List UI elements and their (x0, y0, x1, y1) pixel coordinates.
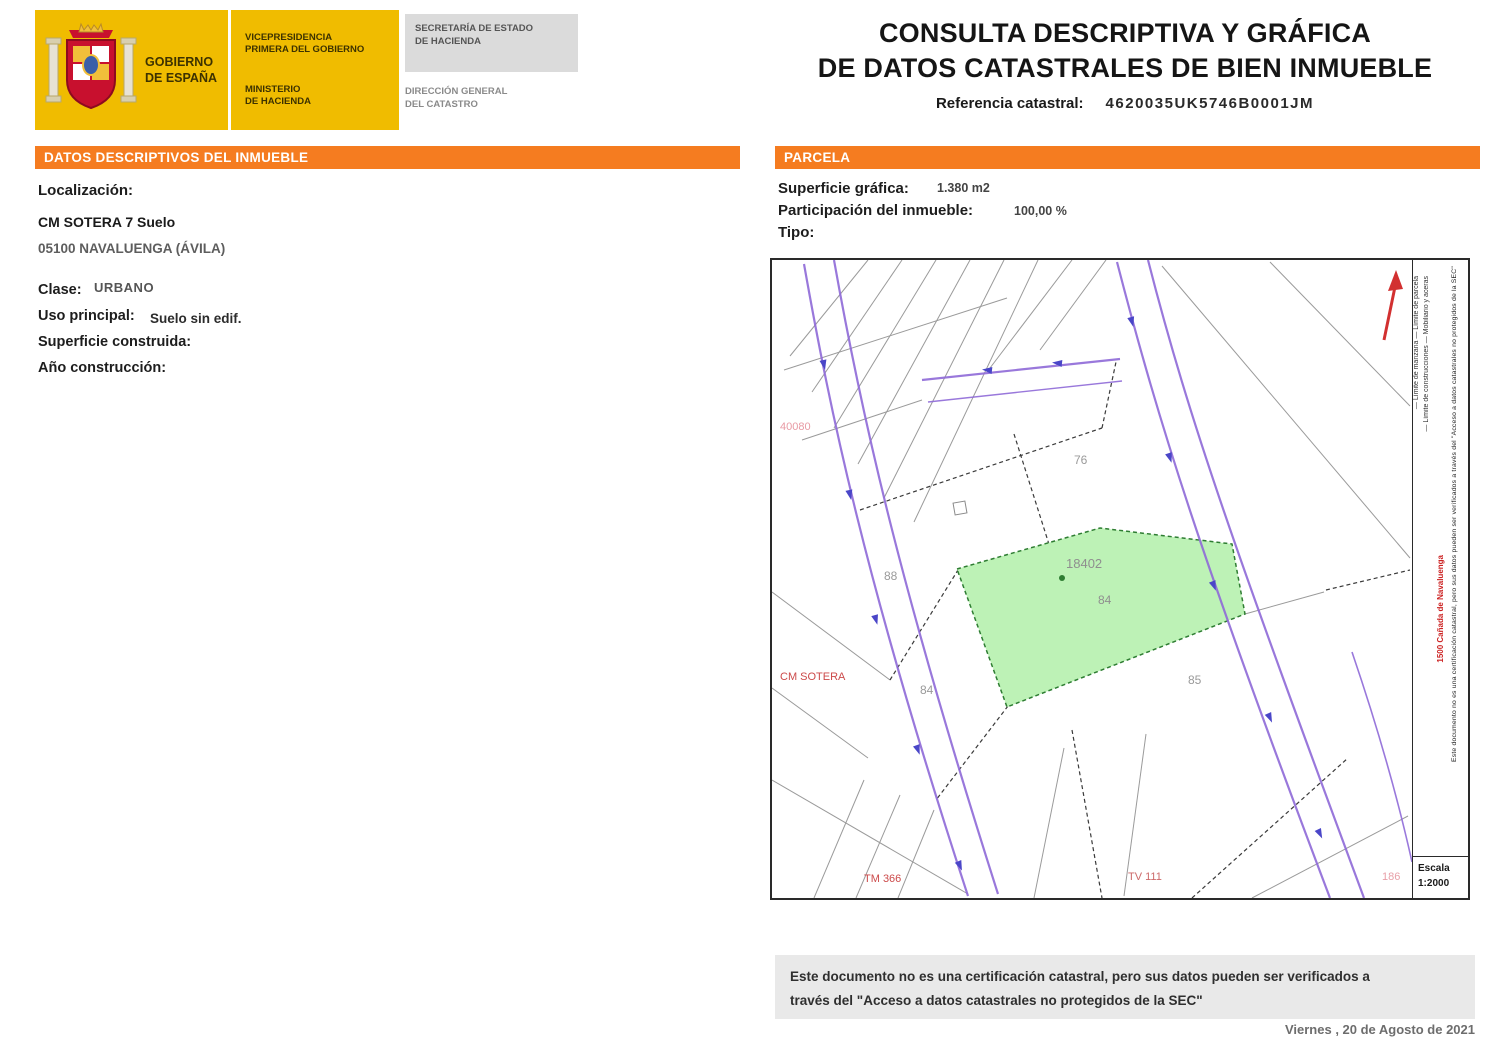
secretariat-label: SECRETARÍA DE ESTADO DE HACIENDA (405, 14, 578, 72)
parcel-number-85: 85 (1188, 673, 1202, 687)
ministry-label: MINISTERIO DE HACIENDA (245, 84, 311, 109)
anio-construccion-label: Año construcción: (38, 360, 166, 376)
map-margin-disclaimer-text: Este documento no es una certificación c… (1451, 266, 1458, 762)
participacion-value: 100,00 % (1014, 204, 1067, 218)
parcel-centroid-dot (1059, 575, 1065, 581)
document-title-block: CONSULTA DESCRIPTIVA Y GRÁFICA DE DATOS … (775, 16, 1475, 112)
cadastral-reference-row: Referencia catastral:4620035UK5746B0001J… (775, 95, 1475, 112)
selected-parcel-number: 18402 (1066, 556, 1102, 571)
uso-principal-label: Uso principal: (38, 308, 135, 324)
map-margin-red-text: 1500 Cañada de Navaluenga (1436, 555, 1445, 663)
cadastral-document-page: GOBIERNO DE ESPAÑA VICEPRESIDENCIA PRIME… (0, 0, 1500, 1058)
building-symbol (953, 501, 967, 515)
map-label-bottom-left: TM 366 (864, 873, 901, 885)
map-scale-box: Escala 1:2000 (1413, 856, 1468, 898)
document-date: Viernes , 20 de Agosto de 2021 (1100, 1022, 1475, 1037)
directorate-line2: DEL CATASTRO (405, 99, 578, 112)
map-margin-strip: — Límite de manzana — Límite de parcela … (1412, 260, 1468, 898)
map-scale-label: Escala (1418, 861, 1463, 876)
ministry-line2: DE HACIENDA (245, 96, 311, 108)
cadastral-reference-label: Referencia catastral: (936, 95, 1084, 112)
clase-label: Clase: (38, 282, 82, 298)
vicepresidency-label: VICEPRESIDENCIA PRIMERA DEL GOBIERNO (245, 32, 364, 57)
map-legend-line1: — Límite de manzana — Límite de parcela (1413, 276, 1420, 409)
directorate-label: DIRECCIÓN GENERAL DEL CATASTRO (405, 86, 578, 112)
government-name: GOBIERNO DE ESPAÑA (145, 55, 217, 86)
government-logo-cell: GOBIERNO DE ESPAÑA (35, 10, 228, 130)
north-arrow-icon (1384, 270, 1403, 340)
map-scale-value: 1:2000 (1418, 876, 1463, 891)
superficie-grafica-value: 1.380 m2 (937, 181, 990, 195)
map-label-bottom-right: 186 (1382, 871, 1400, 883)
ministry-cell: VICEPRESIDENCIA PRIMERA DEL GOBIERNO MIN… (231, 10, 399, 130)
map-label-bottom-center: TV 111 (1128, 871, 1162, 883)
address-line1: CM SOTERA 7 Suelo (38, 214, 175, 230)
address-line2: 05100 NAVALUENGA (ÁVILA) (38, 241, 225, 256)
government-line1: GOBIERNO (145, 55, 217, 71)
directorate-line1: DIRECCIÓN GENERAL (405, 86, 578, 99)
cadastral-reference-value: 4620035UK5746B0001JM (1106, 95, 1314, 112)
map-label-street: CM SOTERA (780, 671, 846, 683)
map-label-top-left: 40080 (780, 421, 811, 433)
section-header-parcela: PARCELA (775, 146, 1480, 169)
parcel-number-88: 88 (884, 569, 898, 583)
parcel-number-76: 76 (1074, 453, 1088, 467)
disclaimer-line1: Este documento no es una certificación c… (790, 965, 1460, 989)
tipo-label: Tipo: (778, 224, 814, 241)
selected-parcel-polygon (957, 528, 1245, 707)
vp-line1: VICEPRESIDENCIA (245, 32, 364, 44)
disclaimer-box: Este documento no es una certificación c… (775, 955, 1475, 1019)
selected-parcel-subnumber: 84 (1098, 593, 1112, 607)
clase-value: URBANO (94, 280, 154, 295)
parcel-number-84: 84 (920, 683, 934, 697)
government-line2: DE ESPAÑA (145, 71, 217, 87)
superficie-construida-label: Superficie construida: (38, 334, 191, 350)
secretariat-line2: DE HACIENDA (415, 36, 568, 49)
section-header-datos-descriptivos: DATOS DESCRIPTIVOS DEL INMUEBLE (35, 146, 740, 169)
cadastral-map-frame: 18402 84 76 88 84 85 40080 CM SOTERA TM … (770, 258, 1470, 900)
uso-principal-value: Suelo sin edif. (150, 311, 242, 326)
document-title-line1: CONSULTA DESCRIPTIVA Y GRÁFICA (775, 16, 1475, 51)
spain-coat-of-arms-icon (41, 18, 141, 122)
map-legend-line2: — Límite de construcciones — Mobiliario … (1423, 276, 1430, 432)
disclaimer-line2: través del "Acceso a datos catastrales n… (790, 989, 1460, 1013)
secretariat-line1: SECRETARÍA DE ESTADO (415, 23, 568, 36)
participacion-label: Participación del inmueble: (778, 202, 973, 219)
cadastral-map: 18402 84 76 88 84 85 40080 CM SOTERA TM … (772, 260, 1412, 898)
vp-line2: PRIMERA DEL GOBIERNO (245, 44, 364, 56)
localizacion-label: Localización: (38, 182, 133, 199)
document-title-line2: DE DATOS CATASTRALES DE BIEN INMUEBLE (775, 51, 1475, 86)
superficie-grafica-label: Superficie gráfica: (778, 180, 909, 197)
ministry-line1: MINISTERIO (245, 84, 311, 96)
